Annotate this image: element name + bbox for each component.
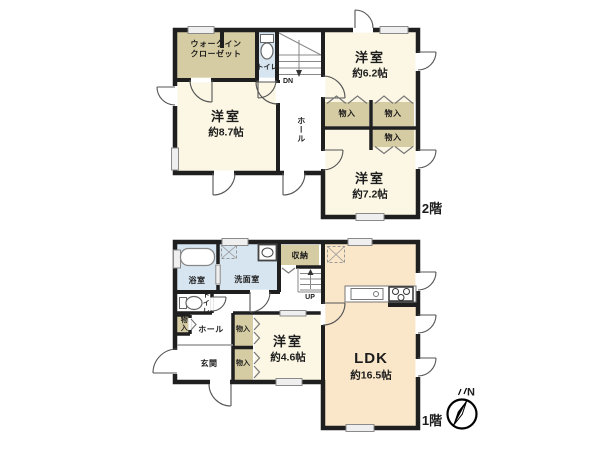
hall-1f-label: ホール bbox=[198, 325, 224, 335]
toilet-1f-label: トイレ bbox=[201, 291, 209, 315]
storage-2f-b-label: 物入 bbox=[385, 109, 402, 119]
ldk-name: LDK bbox=[354, 350, 388, 368]
kitchen-wall-stub bbox=[388, 302, 416, 307]
compass-north-label: N bbox=[467, 386, 475, 399]
stairs-2f-icon bbox=[279, 33, 321, 77]
entrance-label: 玄関 bbox=[201, 359, 218, 369]
walk-in-closet-line2: クローゼット bbox=[191, 49, 242, 59]
washroom-label: 洗面室 bbox=[234, 275, 260, 285]
bathroom-label: 浴室 bbox=[189, 276, 206, 286]
room-72-area: 約7.2帖 bbox=[352, 189, 388, 202]
walk-in-closet-label: ウォークイン クローゼット bbox=[191, 39, 242, 58]
room-62-area: 約6.2帖 bbox=[352, 68, 388, 81]
room-87-area: 約8.7帖 bbox=[208, 127, 244, 140]
floor2-label: 2階 bbox=[422, 201, 442, 217]
ldk-area: 約16.5帖 bbox=[350, 370, 391, 383]
floor1-label: 1階 bbox=[422, 413, 442, 429]
kitchen-counter-icon bbox=[345, 286, 416, 302]
toilet-icon-1f bbox=[180, 297, 203, 310]
storage-2f-a-label: 物入 bbox=[339, 109, 356, 119]
stairs-down-label: DN bbox=[283, 78, 293, 86]
storage-1f-a-label: 物入 bbox=[236, 326, 250, 334]
toilet-2f-label: トイレ bbox=[257, 64, 278, 72]
floorplan-drawing bbox=[0, 0, 600, 450]
storage-1f-label: 収納 bbox=[292, 251, 309, 261]
room-ldk bbox=[325, 243, 416, 427]
bathtub-icon bbox=[181, 249, 215, 266]
washstand-icon bbox=[259, 245, 277, 261]
sliding-door-46 bbox=[280, 311, 306, 317]
room-87-name: 洋室 bbox=[211, 109, 241, 125]
room-72-name: 洋室 bbox=[355, 171, 385, 187]
stairs-up-label: UP bbox=[305, 294, 315, 302]
sliding-door-bath bbox=[216, 265, 220, 284]
room-62-name: 洋室 bbox=[355, 50, 385, 66]
floorplan-canvas: ウォークイン クローゼット トイレ DN ホール 洋室 約6.2帖 物入 物入 … bbox=[0, 0, 600, 450]
room-46-area: 約4.6帖 bbox=[270, 352, 306, 365]
room-46-name: 洋室 bbox=[273, 334, 303, 350]
storage-small-label: 物入 bbox=[179, 316, 187, 332]
walk-in-closet-line1: ウォークイン bbox=[191, 39, 242, 49]
toilet-icon-2f bbox=[261, 35, 274, 60]
hall-2f-label: ホール bbox=[296, 117, 306, 144]
stairs-1f-icon bbox=[298, 268, 321, 292]
storage-2f-c-label: 物入 bbox=[385, 133, 402, 143]
stove-icon bbox=[389, 287, 413, 301]
storage-1f-b-label: 物入 bbox=[236, 360, 250, 368]
